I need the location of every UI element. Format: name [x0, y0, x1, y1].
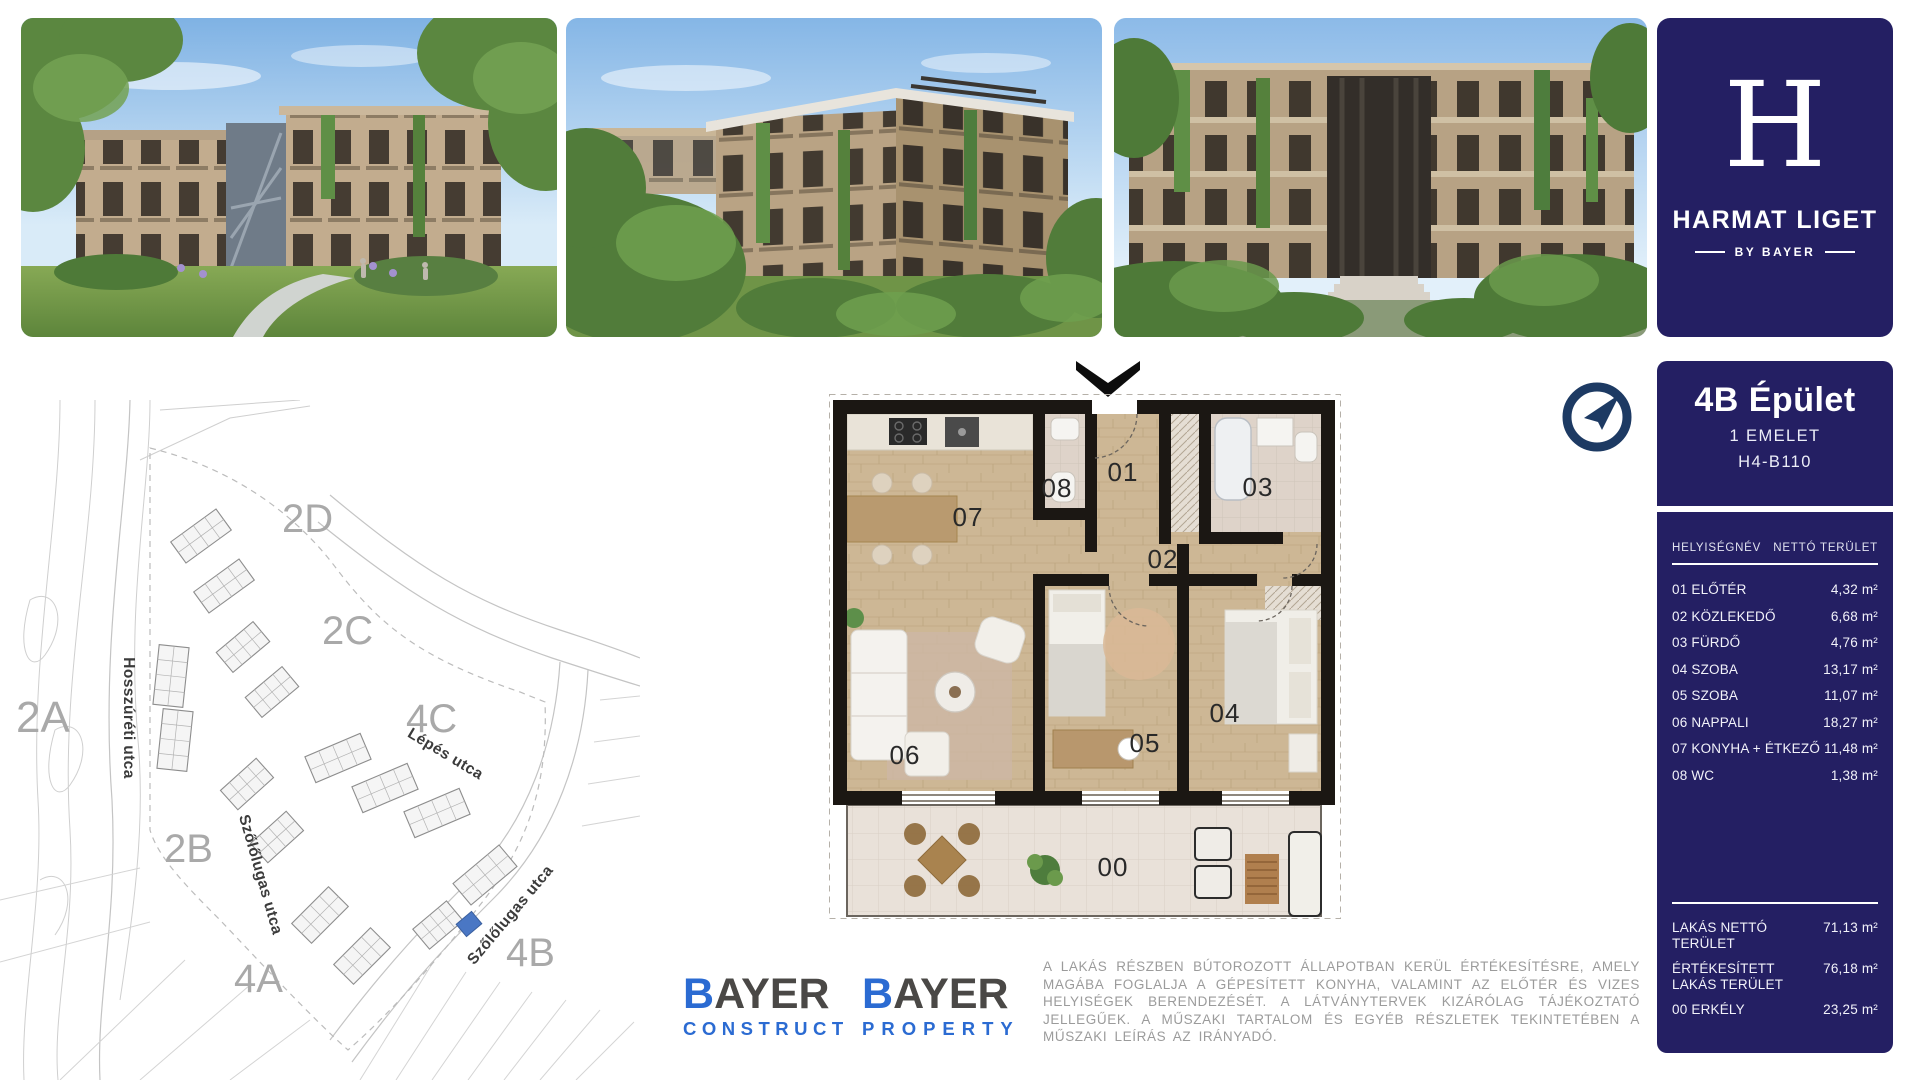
- room-name: 08 WC: [1672, 768, 1714, 783]
- subtitle-left-rule: [1695, 251, 1725, 253]
- compass-icon: [1558, 378, 1636, 456]
- table-row: 08 WC1,38 m²: [1672, 768, 1878, 783]
- floor-plan: 07 08 01 03 02 06 05 04 00: [827, 392, 1343, 928]
- bayer-b: B: [683, 970, 714, 1018]
- total-area: 23,25 m²: [1823, 1002, 1878, 1018]
- bayer-property-logo: BAYER PROPERTY: [862, 973, 1020, 1040]
- cooktop: [889, 418, 927, 445]
- total-name: LAKÁS NETTÓ TERÜLET: [1672, 920, 1822, 952]
- map-label-2c: 2C: [322, 609, 373, 653]
- room-area: 13,17 m²: [1823, 662, 1878, 677]
- table-row: 04 SZOBA13,17 m²: [1672, 662, 1878, 677]
- map-label-4b: 4B: [506, 931, 555, 975]
- bed-05-blanket: [1049, 644, 1105, 716]
- col-net-area: NETTÓ TERÜLET: [1773, 542, 1878, 554]
- room-label-04: 04: [1210, 698, 1241, 728]
- sink-faucet: [958, 428, 966, 436]
- total-row: LAKÁS NETTÓ TERÜLET71,13 m²: [1672, 920, 1878, 952]
- bayer-rest: AYER: [714, 970, 830, 1018]
- room-area: 11,48 m²: [1824, 741, 1878, 756]
- room-label-00: 00: [1098, 852, 1129, 882]
- brand-subtitle: BY BAYER: [1735, 245, 1816, 259]
- bed-05-pillow: [1053, 594, 1101, 612]
- room-label-07: 07: [953, 502, 984, 532]
- room-area: 18,27 m²: [1823, 715, 1878, 730]
- room-label-05: 05: [1130, 728, 1161, 758]
- map-label-2a: 2A: [16, 693, 70, 742]
- room-name: 04 SZOBA: [1672, 662, 1738, 677]
- total-name: ÉRTÉKESÍTETT LAKÁS TERÜLET: [1672, 961, 1822, 993]
- bayer-construct-wordmark: BAYER: [683, 973, 849, 1015]
- rendering-photo-entrance: [1114, 18, 1647, 337]
- room-name: 02 KÖZLEKEDŐ: [1672, 609, 1776, 624]
- table-row: 01 ELŐTÉR4,32 m²: [1672, 582, 1878, 597]
- coffee-table-decor: [949, 686, 961, 698]
- room-label-06: 06: [890, 740, 921, 770]
- balcony-bench: [1289, 832, 1321, 916]
- dining-table: [847, 496, 957, 542]
- bayer-b: B: [862, 970, 893, 1018]
- total-row: 00 ERKÉLY23,25 m²: [1672, 1002, 1878, 1018]
- bayer-property-wordmark: BAYER: [862, 973, 1020, 1015]
- table-row: 07 KONYHA + ÉTKEZŐ11,48 m²: [1672, 741, 1878, 756]
- bayer-rest: AYER: [893, 970, 1009, 1018]
- totals-rule: [1672, 902, 1878, 904]
- site-map: 2A 2B 2C 2D 4A 4B 4C Hosszúréti utca Lép…: [0, 400, 640, 1080]
- wc-sink: [1051, 418, 1079, 440]
- construct-label: CONSTRUCT: [683, 1018, 849, 1040]
- room-area: 11,07 m²: [1824, 688, 1878, 703]
- room-name: 07 KONYHA + ÉTKEZŐ: [1672, 741, 1820, 756]
- bath-sink: [1257, 418, 1293, 446]
- unit-id: H4-B110: [1657, 453, 1893, 472]
- rendering-photo-corner: [566, 18, 1102, 337]
- entrance-render-graphic: [1114, 18, 1647, 337]
- table-row: 03 FÜRDŐ4,76 m²: [1672, 635, 1878, 650]
- disclaimer-text: A LAKÁS RÉSZBEN BÚTOROZOTT ÁLLAPOTBAN KE…: [1043, 958, 1640, 1046]
- bayer-construct-logo: BAYER CONSTRUCT: [683, 973, 849, 1040]
- property-label: PROPERTY: [862, 1018, 1020, 1040]
- table-row: 02 KÖZLEKEDŐ6,68 m²: [1672, 609, 1878, 624]
- total-name: 00 ERKÉLY: [1672, 1002, 1822, 1018]
- unit-header-panel: 4B Épület 1 EMELET H4-B110: [1657, 361, 1893, 506]
- room-table-panel: HELYISÉGNÉV NETTÓ TERÜLET 01 ELŐTÉR4,32 …: [1657, 512, 1893, 1053]
- brand-subtitle-row: BY BAYER: [1695, 245, 1856, 259]
- table-row: 06 NAPPALI18,27 m²: [1672, 715, 1878, 730]
- table-header-rule: [1672, 563, 1878, 565]
- map-label-4a: 4A: [234, 957, 283, 1001]
- room-label-01: 01: [1108, 457, 1139, 487]
- col-room-name: HELYISÉGNÉV: [1672, 542, 1761, 554]
- total-row: ÉRTÉKESÍTETT LAKÁS TERÜLET76,18 m²: [1672, 961, 1878, 993]
- balcony-windows: [902, 795, 1289, 801]
- room-area: 6,68 m²: [1831, 609, 1878, 624]
- floor-label: 1 EMELET: [1657, 427, 1893, 446]
- room-label-08: 08: [1042, 473, 1073, 503]
- rendering-photo-courtyard: [21, 18, 557, 337]
- room-name: 05 SZOBA: [1672, 688, 1738, 703]
- bed-04-pillow-2: [1289, 672, 1311, 718]
- wardrobe-hatch: [1171, 414, 1199, 532]
- room-label-03: 03: [1243, 472, 1274, 502]
- courtyard-render-graphic: [21, 18, 557, 337]
- room-name: 01 ELŐTÉR: [1672, 582, 1747, 597]
- total-area: 71,13 m²: [1823, 920, 1878, 952]
- table-row: 05 SZOBA11,07 m²: [1672, 688, 1878, 703]
- subtitle-right-rule: [1825, 251, 1855, 253]
- room-name: 03 FÜRDŐ: [1672, 635, 1740, 650]
- room-area: 4,76 m²: [1831, 635, 1878, 650]
- room-label-02: 02: [1148, 544, 1179, 574]
- rug-05: [1103, 608, 1175, 680]
- room-area: 1,38 m²: [1831, 768, 1878, 783]
- brand-title: HARMAT LIGET: [1672, 206, 1877, 235]
- kitchen-counter: [847, 414, 1033, 450]
- totals-section: LAKÁS NETTÓ TERÜLET71,13 m² ÉRTÉKESÍTETT…: [1672, 902, 1878, 1027]
- bed-04-pillow: [1289, 618, 1311, 664]
- room-area: 4,32 m²: [1831, 582, 1878, 597]
- table-header: HELYISÉGNÉV NETTÓ TERÜLET: [1672, 542, 1878, 554]
- lounge-chair-2: [1195, 866, 1231, 898]
- map-buildings: [153, 509, 517, 984]
- brand-panel: H HARMAT LIGET BY BAYER: [1657, 18, 1893, 337]
- room-name: 06 NAPPALI: [1672, 715, 1749, 730]
- vanity-04: [1289, 734, 1317, 772]
- map-label-2b: 2B: [164, 827, 213, 871]
- map-label-2d: 2D: [282, 497, 333, 541]
- corner-render-graphic: [566, 18, 1102, 337]
- bath-toilet: [1295, 432, 1317, 462]
- building-name: 4B Épület: [1657, 381, 1893, 420]
- brand-monogram: H: [1724, 66, 1827, 184]
- total-area: 76,18 m²: [1823, 961, 1878, 993]
- street-hosszureti: Hosszúréti utca: [120, 657, 137, 778]
- lounge-chair-1: [1195, 828, 1231, 860]
